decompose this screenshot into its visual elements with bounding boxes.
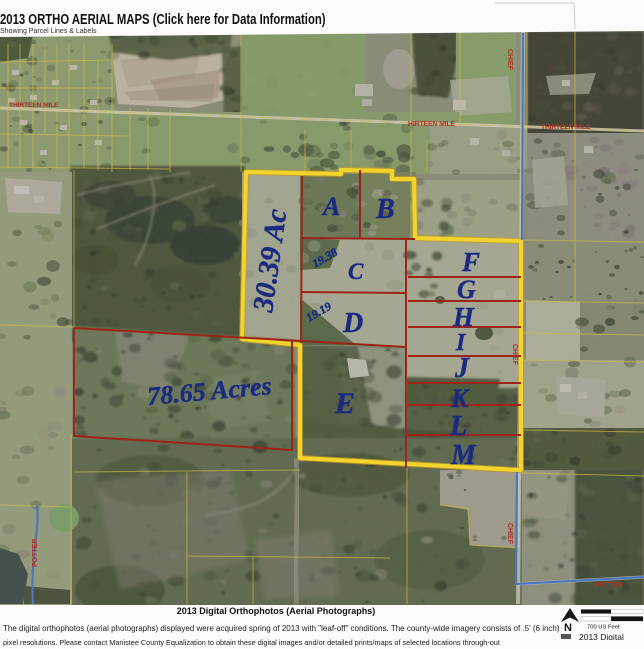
svg-text:HIRTEEN MILE: HIRTEEN MILE bbox=[408, 121, 456, 128]
svg-text:E: E bbox=[334, 387, 355, 420]
svg-text:THIRTEEN MILE: THIRTEEN MILE bbox=[9, 102, 59, 109]
svg-text:POTTER: POTTER bbox=[32, 539, 39, 567]
svg-text:K: K bbox=[450, 384, 470, 413]
svg-text:L: L bbox=[449, 411, 467, 442]
svg-text:CHIEF: CHIEF bbox=[511, 344, 518, 366]
svg-text:G: G bbox=[457, 275, 476, 304]
svg-text:M: M bbox=[450, 440, 477, 471]
svg-text:H: H bbox=[452, 302, 475, 332]
svg-text:2013 Digital: 2013 Digital bbox=[579, 632, 624, 640]
svg-text:F: F bbox=[461, 247, 480, 277]
svg-text:CHIEF: CHIEF bbox=[506, 523, 513, 545]
svg-text:B: B bbox=[375, 194, 395, 225]
svg-text:CHIEF: CHIEF bbox=[506, 49, 513, 71]
svg-text:J: J bbox=[454, 353, 470, 384]
svg-text:N: N bbox=[564, 622, 572, 634]
svg-text:D: D bbox=[342, 308, 363, 339]
svg-text:700 US Feet: 700 US Feet bbox=[587, 625, 620, 631]
svg-text:A: A bbox=[321, 192, 340, 221]
svg-text:THIRTEEN MILE: THIRTEEN MILE bbox=[541, 124, 591, 131]
svg-text:C: C bbox=[348, 259, 364, 284]
svg-text:POTTER: POTTER bbox=[595, 582, 623, 589]
